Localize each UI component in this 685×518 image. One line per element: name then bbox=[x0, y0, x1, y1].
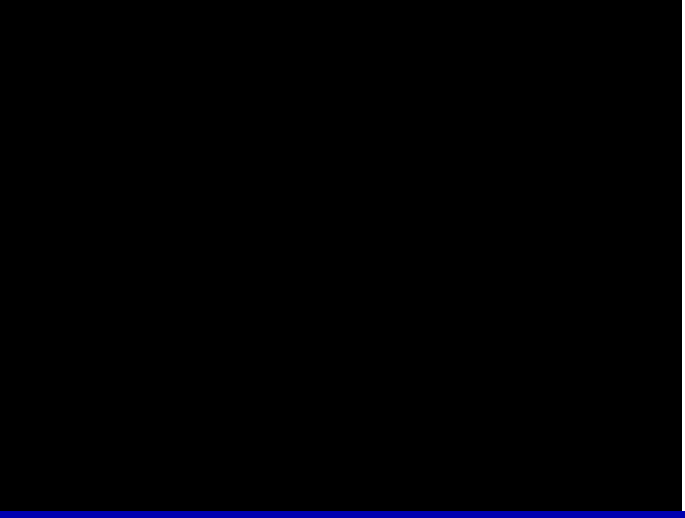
bottom-blue-bar bbox=[0, 511, 685, 518]
floorplan-canvas bbox=[0, 0, 685, 518]
